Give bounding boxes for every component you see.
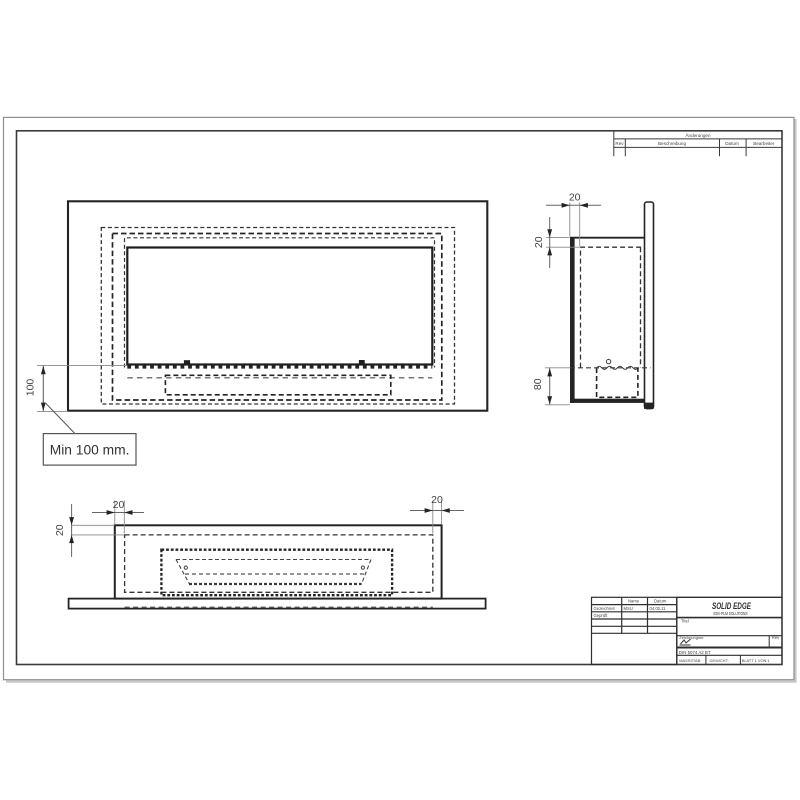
- svg-text:Geprüft: Geprüft: [594, 613, 609, 618]
- svg-text:Min 100 mm.: Min 100 mm.: [50, 443, 130, 458]
- svg-text:20: 20: [569, 191, 581, 203]
- svg-text:20: 20: [431, 494, 443, 506]
- svg-text:DIN 5074 A2 BT: DIN 5074 A2 BT: [679, 650, 711, 655]
- svg-text:Beschreibung: Beschreibung: [658, 141, 687, 146]
- svg-text:Datum: Datum: [654, 599, 667, 604]
- svg-text:Zeichnungsnr.: Zeichnungsnr.: [679, 635, 704, 640]
- svg-text:100: 100: [25, 379, 37, 397]
- svg-text:Name: Name: [628, 599, 640, 604]
- svg-text:Rev: Rev: [772, 635, 780, 640]
- svg-text:80: 80: [532, 378, 544, 390]
- svg-text:MASSSTAB:: MASSSTAB:: [679, 658, 701, 663]
- svg-text:GEWICHT:: GEWICHT:: [710, 658, 729, 663]
- svg-text:20: 20: [533, 236, 545, 248]
- svg-text:Bearbeiter: Bearbeiter: [753, 141, 775, 146]
- svg-text:EDV-PLM SOLUTIONS: EDV-PLM SOLUTIONS: [714, 611, 748, 616]
- svg-text:Gezeichnet: Gezeichnet: [594, 606, 616, 611]
- svg-text:Titel: Titel: [681, 619, 689, 624]
- svg-text:04.02.11: 04.02.11: [650, 606, 667, 611]
- svg-text:20: 20: [54, 524, 66, 536]
- svg-text:Änderungen: Änderungen: [685, 132, 710, 138]
- svg-text:Datum: Datum: [725, 141, 739, 146]
- svg-text:Rev: Rev: [615, 141, 624, 146]
- svg-text:20: 20: [113, 499, 125, 511]
- svg-text:MSU: MSU: [624, 606, 633, 611]
- svg-text:BLATT 1 VON 1: BLATT 1 VON 1: [742, 658, 770, 663]
